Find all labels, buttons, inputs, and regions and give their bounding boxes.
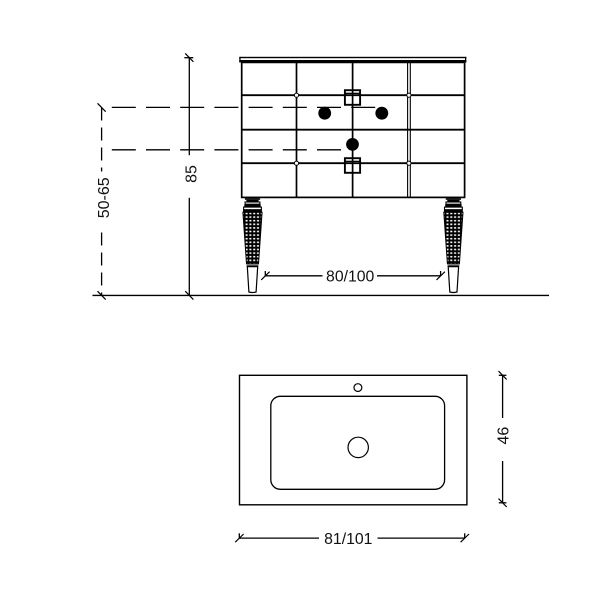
svg-text:50-65: 50-65 xyxy=(96,177,113,218)
svg-text:46: 46 xyxy=(496,427,513,445)
svg-text:81/101: 81/101 xyxy=(324,531,373,548)
svg-text:85: 85 xyxy=(183,165,200,183)
svg-text:80/100: 80/100 xyxy=(326,269,375,286)
